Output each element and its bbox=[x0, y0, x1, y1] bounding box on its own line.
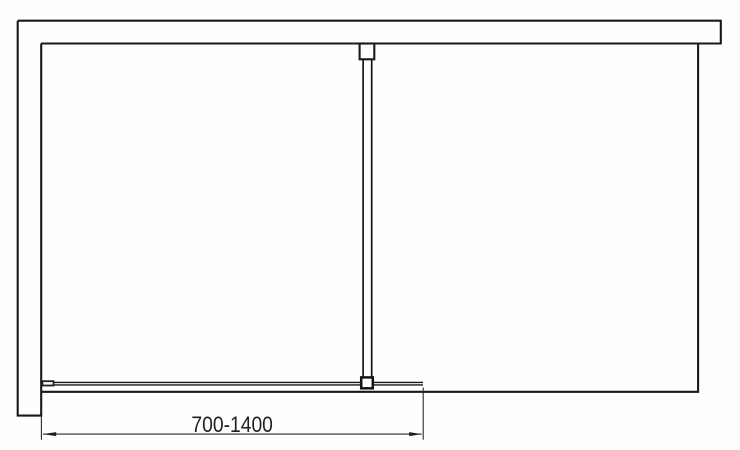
svg-text:700-1400: 700-1400 bbox=[191, 412, 273, 437]
